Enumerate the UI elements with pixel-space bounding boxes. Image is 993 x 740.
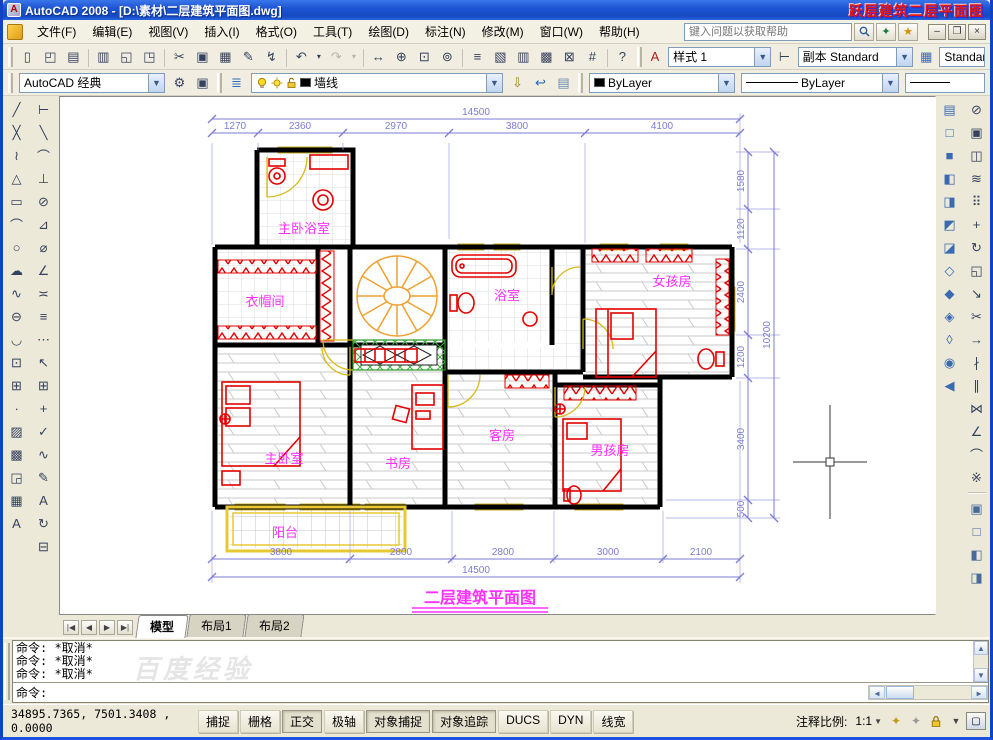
zoom-window-icon[interactable]: ⊡ xyxy=(413,46,436,68)
status-menu-icon[interactable]: ▼ xyxy=(947,712,965,730)
dim-total-bottom: 14500 xyxy=(462,565,490,576)
dim-style-toolbar-icon[interactable]: ⊢ xyxy=(774,46,794,68)
svg-text:3800: 3800 xyxy=(270,547,293,558)
gradient-icon[interactable]: ▩ xyxy=(5,443,28,466)
arc-icon[interactable]: ⌒ xyxy=(5,213,28,236)
coordinate-readout[interactable]: 34895.7365, 7501.3408 , 0.0000 xyxy=(7,705,197,737)
dimension-toolbar: ⊢╲⌒⊥⊘⊿⌀∠≍≡⋯↖⊞+✓∿✎A↻⊟ xyxy=(30,96,57,558)
svg-text:1270: 1270 xyxy=(224,121,247,132)
drawing-file-icon xyxy=(7,24,23,40)
previous-view-icon[interactable]: ◀ xyxy=(938,374,961,397)
autocad-window: A AutoCAD 2008 - [D:\素材\二层建筑平面图.dwg] 跃层建… xyxy=(0,0,993,740)
toggle-otrack[interactable]: 对象追踪 xyxy=(432,710,496,733)
table-icon[interactable]: ▦ xyxy=(5,489,28,512)
dim-inspect-icon[interactable]: ✓ xyxy=(32,420,55,443)
tab-layout1[interactable]: 布局1 xyxy=(186,614,246,637)
break-icon[interactable]: ∥ xyxy=(965,374,988,397)
minimize-button[interactable]: – xyxy=(928,24,946,40)
redo-icon[interactable]: ↷ xyxy=(325,46,348,68)
layer-properties-icon[interactable]: ≣ xyxy=(225,72,248,94)
room-label-boy: 男孩房 xyxy=(590,443,629,458)
scrollbar-thumb[interactable] xyxy=(886,686,914,699)
chevron-down-icon: ▼ xyxy=(874,717,882,726)
bring-to-front-icon[interactable]: ▣ xyxy=(965,497,988,520)
command-prompt: 命令: xyxy=(16,684,47,701)
save-icon[interactable]: ▤ xyxy=(62,46,85,68)
toolbar-divider xyxy=(968,492,986,494)
camera-icon[interactable]: ◉ xyxy=(938,351,961,374)
layout-tabs: 模型布局1布局2 xyxy=(137,614,303,637)
workspace-combo[interactable]: AutoCAD 经典 ▼ xyxy=(19,73,165,93)
svg-text:2970: 2970 xyxy=(385,121,408,132)
block-editor-icon[interactable]: ↯ xyxy=(260,46,283,68)
command-history-line: 命令: *取消* xyxy=(16,668,970,681)
array-icon[interactable]: ⠿ xyxy=(965,190,988,213)
trim-icon[interactable]: ✂ xyxy=(965,305,988,328)
text-style-icon[interactable]: A xyxy=(645,46,665,68)
menu-bar: 文件(F)编辑(E)视图(V)插入(I)格式(O)工具(T)绘图(D)标注(N)… xyxy=(3,20,990,44)
help-icon[interactable]: ? xyxy=(611,46,634,68)
join-icon[interactable]: ⋈ xyxy=(965,397,988,420)
erase-icon[interactable]: ⊘ xyxy=(965,98,988,121)
restore-button[interactable]: ❐ xyxy=(948,24,966,40)
toggle-dyn[interactable]: DYN xyxy=(550,710,591,733)
toolbar-grip[interactable] xyxy=(8,47,13,67)
view-back-icon[interactable]: ◪ xyxy=(938,236,961,259)
main-area: ╱╳≀△▭⌒○☁∿⊖◡⊡⊞∙▨▩◲▦A ⊢╲⌒⊥⊘⊿⌀∠≍≡⋯↖⊞+✓∿✎A↻⊟ xyxy=(3,96,990,637)
right-dock: ▤□■◧◨◩◪◇◆◈◊◉◀ ⊘▣◫≋⠿+↻◱↘✂→∤∥⋈∠⌒※ ▣□◧◨ xyxy=(936,96,990,637)
offset-icon[interactable]: ≋ xyxy=(965,167,988,190)
copy-icon[interactable]: ▣ xyxy=(191,46,214,68)
room-label-study: 书房 xyxy=(385,456,411,471)
view-top-icon[interactable]: □ xyxy=(938,121,961,144)
send-to-back-icon[interactable]: □ xyxy=(965,520,988,543)
chevron-down-icon[interactable]: ▼ xyxy=(486,74,502,92)
chamfer-icon[interactable]: ∠ xyxy=(965,420,988,443)
quick-dim-icon[interactable]: ≍ xyxy=(32,282,55,305)
toggle-snap[interactable]: 捕捉 xyxy=(198,710,238,733)
menu-file[interactable]: 文件(F) xyxy=(29,20,84,43)
open-icon[interactable]: ◰ xyxy=(39,46,62,68)
dim-style-combo[interactable]: 副本 Standard ▼ xyxy=(798,47,913,67)
next-tab-icon[interactable]: ▶ xyxy=(99,620,115,635)
dim-total-top: 14500 xyxy=(462,107,490,118)
view-nw-iso-icon[interactable]: ◊ xyxy=(938,328,961,351)
tool-palettes-icon[interactable]: ▥ xyxy=(512,46,535,68)
toggle-osnap[interactable]: 对象捕捉 xyxy=(366,710,430,733)
layer-freeze-sun-icon[interactable] xyxy=(271,77,283,89)
view-right-icon[interactable]: ◨ xyxy=(938,190,961,213)
table-style-icon[interactable]: ▦ xyxy=(916,46,936,68)
window-title: AutoCAD 2008 - [D:\素材\二层建筑平面图.dwg] xyxy=(25,2,282,19)
view-toolbar: ▤□■◧◨◩◪◇◆◈◊◉◀ xyxy=(936,96,963,397)
hatch-icon[interactable]: ▨ xyxy=(5,420,28,443)
scroll-down-icon[interactable]: ▼ xyxy=(974,668,988,682)
view-left-icon[interactable]: ◧ xyxy=(938,167,961,190)
scroll-left-icon[interactable]: ◀ xyxy=(869,686,885,699)
annotation-autoscale-icon[interactable]: ✦ xyxy=(907,712,925,730)
view-front-icon[interactable]: ◩ xyxy=(938,213,961,236)
pan-icon[interactable]: ↔ xyxy=(367,46,390,68)
room-label-master-bath: 主卧浴室 xyxy=(278,221,330,236)
svg-text:2360: 2360 xyxy=(289,121,312,132)
annotation-scale-label: 注释比例: xyxy=(796,713,847,730)
annotation-visibility-icon[interactable]: ✦ xyxy=(887,712,905,730)
ellipse-icon[interactable]: ⊖ xyxy=(5,305,28,328)
toolbar-grip[interactable] xyxy=(578,73,583,93)
menu-help[interactable]: 帮助(H) xyxy=(591,20,648,43)
layout-tab-bar: |◀ ◀ ▶ ▶| 模型布局1布局2 xyxy=(59,615,936,637)
quickcalc-icon[interactable]: # xyxy=(581,46,604,68)
dim-continue-icon[interactable]: ⋯ xyxy=(32,328,55,351)
new-icon[interactable]: ▯ xyxy=(16,46,39,68)
svg-text:二层建筑平面图: 二层建筑平面图 xyxy=(424,588,536,607)
drawing-canvas[interactable]: 14500 1270 2360 2970 3800 4100 3800 2800… xyxy=(59,96,936,615)
app-logo-icon: A xyxy=(7,3,21,17)
fillet-icon[interactable]: ⌒ xyxy=(965,443,988,466)
view-se-iso-icon[interactable]: ◆ xyxy=(938,282,961,305)
favorites-icon[interactable]: ★ xyxy=(898,23,918,41)
command-window: 命令: *取消*命令: *取消*命令: *取消* 百度经验 ▲ ▼ 命令: ◀ … xyxy=(3,637,990,704)
svg-text:2100: 2100 xyxy=(690,547,713,558)
clean-screen-button[interactable]: ▢ xyxy=(966,712,986,730)
room-label-balcony: 阳台 xyxy=(272,525,298,540)
properties-icon[interactable]: ≡ xyxy=(466,46,489,68)
close-button[interactable]: × xyxy=(968,24,986,40)
dim-jogline-icon[interactable]: ∿ xyxy=(32,443,55,466)
first-tab-icon[interactable]: |◀ xyxy=(63,620,79,635)
dim-style-icon[interactable]: ⊟ xyxy=(32,535,55,558)
toggle-ortho[interactable]: 正交 xyxy=(282,710,322,733)
polyline-icon[interactable]: ≀ xyxy=(5,144,28,167)
dim-radius-icon[interactable]: ⊘ xyxy=(32,190,55,213)
dim-aligned-icon[interactable]: ╲ xyxy=(32,121,55,144)
zoom-previous-icon[interactable]: ⊚ xyxy=(436,46,459,68)
status-bar: 34895.7365, 7501.3408 , 0.0000 捕捉栅格正交极轴对… xyxy=(3,704,990,737)
send-under-icon[interactable]: ◨ xyxy=(965,566,988,589)
floor-plan: 14500 1270 2360 2970 3800 4100 3800 2800… xyxy=(60,97,936,615)
plot-icon[interactable]: ▥ xyxy=(92,46,115,68)
explode-icon[interactable]: ※ xyxy=(965,466,988,489)
designcenter-icon[interactable]: ▧ xyxy=(489,46,512,68)
command-horizontal-scrollbar[interactable]: ◀ ▶ xyxy=(868,685,988,700)
tab-layout2[interactable]: 布局2 xyxy=(244,614,304,637)
view-ne-iso-icon[interactable]: ◈ xyxy=(938,305,961,328)
workspace-settings-icon[interactable]: ⚙ xyxy=(168,72,191,94)
chevron-down-icon[interactable]: ▼ xyxy=(896,48,912,66)
linetype-sample xyxy=(746,82,798,83)
layer-combo[interactable]: 墙线 ▼ xyxy=(251,73,503,93)
room-label-master: 主卧室 xyxy=(264,451,303,466)
modify-toolbar: ⊘▣◫≋⠿+↻◱↘✂→∤∥⋈∠⌒※ ▣□◧◨ xyxy=(963,96,990,589)
tab-navigation: |◀ ◀ ▶ ▶| xyxy=(61,620,133,635)
undo-menu-icon[interactable]: ▾ xyxy=(313,46,325,68)
point-icon[interactable]: ∙ xyxy=(5,397,28,420)
sheet-set-manager-icon[interactable]: ▩ xyxy=(535,46,558,68)
color-swatch xyxy=(594,78,605,87)
svg-text:3000: 3000 xyxy=(597,547,620,558)
linetype-combo[interactable]: ByLayer ▼ xyxy=(741,73,899,93)
scroll-right-icon[interactable]: ▶ xyxy=(971,686,987,699)
tab-model[interactable]: 模型 xyxy=(135,615,188,638)
command-history-line: 命令: *取消* xyxy=(16,642,970,655)
markup-set-manager-icon[interactable]: ⊠ xyxy=(558,46,581,68)
menu-draw[interactable]: 绘图(D) xyxy=(360,20,417,43)
dim-update-icon[interactable]: ↻ xyxy=(32,512,55,535)
named-views-icon[interactable]: ▤ xyxy=(938,98,961,121)
polygon-icon[interactable]: △ xyxy=(5,167,28,190)
layer-unlock-icon[interactable] xyxy=(286,77,297,89)
svg-text:2400: 2400 xyxy=(736,280,747,303)
rectangle-icon[interactable]: ▭ xyxy=(5,190,28,213)
lineweight-sample xyxy=(910,82,950,83)
quick-leader-icon[interactable]: ↖ xyxy=(32,351,55,374)
dim-baseline-icon[interactable]: ≡ xyxy=(32,305,55,328)
toggle-grid[interactable]: 栅格 xyxy=(240,710,280,733)
layer-previous-icon[interactable]: ↩ xyxy=(529,72,552,94)
toolbar-grip[interactable] xyxy=(637,47,642,67)
svg-text:2800: 2800 xyxy=(492,547,515,558)
lineweight-combo[interactable] xyxy=(905,73,985,93)
menu-window[interactable]: 窗口(W) xyxy=(532,20,591,43)
command-vertical-scrollbar[interactable]: ▲ ▼ xyxy=(973,641,988,682)
plot-preview-icon[interactable]: ◱ xyxy=(115,46,138,68)
svg-text:1120: 1120 xyxy=(736,218,747,240)
line-icon[interactable]: ╱ xyxy=(5,98,28,121)
annotation-scale-control[interactable]: 1:1 ▼ xyxy=(851,713,886,729)
menu-dimension[interactable]: 标注(N) xyxy=(417,20,474,43)
menu-format[interactable]: 格式(O) xyxy=(248,20,305,43)
chevron-down-icon[interactable]: ▼ xyxy=(148,74,164,92)
make-object-layer-current-icon[interactable]: ⇩ xyxy=(506,72,529,94)
left-dock: ╱╳≀△▭⌒○☁∿⊖◡⊡⊞∙▨▩◲▦A ⊢╲⌒⊥⊘⊿⌀∠≍≡⋯↖⊞+✓∿✎A↻⊟ xyxy=(3,96,59,637)
dim-linear-icon[interactable]: ⊢ xyxy=(32,98,55,121)
svg-text:500: 500 xyxy=(736,500,747,517)
construction-line-icon[interactable]: ╳ xyxy=(5,121,28,144)
draw-order-toolbar: ▣□◧◨ xyxy=(965,497,988,589)
standard-buttons: ▯◰▤▥◱◳✂▣▦✎↯↶▾↷▾↔⊕⊡⊚≡▧▥▩⊠#? xyxy=(16,46,634,68)
toggle-ducs[interactable]: DUCS xyxy=(498,710,548,733)
room-label-guest: 客房 xyxy=(489,428,515,443)
center-mark-icon[interactable]: + xyxy=(32,397,55,420)
menu-modify[interactable]: 修改(M) xyxy=(474,20,532,43)
table-style-combo[interactable]: Standard xyxy=(939,47,985,67)
toolbar-lock-icon[interactable] xyxy=(927,712,945,730)
layer-color-swatch xyxy=(300,78,311,87)
help-search-input[interactable] xyxy=(684,23,852,41)
dim-total-right: 10200 xyxy=(762,321,773,349)
menu-tools[interactable]: 工具(T) xyxy=(305,20,360,43)
communication-center-icon[interactable]: ✦ xyxy=(876,23,896,41)
scale-icon[interactable]: ◱ xyxy=(965,259,988,282)
menu-edit[interactable]: 编辑(E) xyxy=(84,20,140,43)
plan-title: 二层建筑平面图 xyxy=(412,588,548,612)
workspace-save-icon[interactable]: ▣ xyxy=(191,72,214,94)
mtext-icon[interactable]: A xyxy=(5,512,28,535)
last-tab-icon[interactable]: ▶| xyxy=(117,620,133,635)
ellipse-arc-icon[interactable]: ◡ xyxy=(5,328,28,351)
spiral-staircase xyxy=(357,256,437,336)
layer-states-icon[interactable]: ▤ xyxy=(552,72,575,94)
mdi-window-buttons: – ❐ × xyxy=(926,24,986,40)
status-toggles: 捕捉栅格正交极轴对象捕捉对象追踪DUCSDYN线宽 xyxy=(197,710,634,733)
toolbar-grip[interactable] xyxy=(8,73,13,93)
layers-toolbar: AutoCAD 经典 ▼ ⚙ ▣ ≣ 墙线 ▼ ⇩ ↩ ▤ ByLayer ▼ … xyxy=(3,70,990,96)
stretch-icon[interactable]: ↘ xyxy=(965,282,988,305)
zoom-realtime-icon[interactable]: ⊕ xyxy=(390,46,413,68)
chevron-down-icon[interactable]: ▼ xyxy=(754,48,770,66)
menu-insert[interactable]: 插入(I) xyxy=(196,20,247,43)
mirror-icon[interactable]: ◫ xyxy=(965,144,988,167)
dim-ordinate-icon[interactable]: ⊥ xyxy=(32,167,55,190)
view-sw-iso-icon[interactable]: ◇ xyxy=(938,259,961,282)
watermark-text: 跃层建筑二层平面图 xyxy=(849,1,984,21)
svg-text:2800: 2800 xyxy=(390,547,413,558)
entry-mat xyxy=(353,340,445,370)
chevron-down-icon[interactable]: ▼ xyxy=(718,74,734,92)
scroll-up-icon[interactable]: ▲ xyxy=(974,641,988,655)
dim-arc-length-icon[interactable]: ⌒ xyxy=(32,144,55,167)
svg-text:1580: 1580 xyxy=(736,169,747,192)
room-label-girl: 女孩房 xyxy=(652,274,691,289)
room-label-closet: 衣帽间 xyxy=(245,294,284,309)
command-window-grip[interactable] xyxy=(4,643,10,700)
svg-text:3400: 3400 xyxy=(736,427,747,450)
extend-icon[interactable]: → xyxy=(965,328,988,351)
view-bottom-icon[interactable]: ■ xyxy=(938,144,961,167)
undo-icon[interactable]: ↶ xyxy=(290,46,313,68)
layer-on-bulb-icon[interactable] xyxy=(256,77,268,89)
room-label-bath: 浴室 xyxy=(494,288,520,303)
svg-text:1200: 1200 xyxy=(736,345,747,368)
title-bar: A AutoCAD 2008 - [D:\素材\二层建筑平面图.dwg] 跃层建… xyxy=(3,0,990,20)
break-at-point-icon[interactable]: ∤ xyxy=(965,351,988,374)
dim-angular-icon[interactable]: ∠ xyxy=(32,259,55,282)
menu-view[interactable]: 视图(V) xyxy=(140,20,196,43)
dim-jogged-icon[interactable]: ⊿ xyxy=(32,213,55,236)
toggle-lwt[interactable]: 线宽 xyxy=(593,710,633,733)
command-history[interactable]: 命令: *取消*命令: *取消*命令: *取消* 百度经验 ▲ ▼ xyxy=(13,641,988,683)
svg-text:3800: 3800 xyxy=(506,121,529,132)
region-icon[interactable]: ◲ xyxy=(5,466,28,489)
prev-tab-icon[interactable]: ◀ xyxy=(81,620,97,635)
rotate-icon[interactable]: ↻ xyxy=(965,236,988,259)
search-icon[interactable] xyxy=(854,23,874,41)
revcloud-icon[interactable]: ☁ xyxy=(5,259,28,282)
move-icon[interactable]: + xyxy=(965,213,988,236)
redo-menu-icon[interactable]: ▾ xyxy=(348,46,360,68)
toggle-polar[interactable]: 极轴 xyxy=(324,710,364,733)
spline-icon[interactable]: ∿ xyxy=(5,282,28,305)
publish-icon[interactable]: ◳ xyxy=(138,46,161,68)
insert-block-icon[interactable]: ⊡ xyxy=(5,351,28,374)
text-style-combo[interactable]: 样式 1 ▼ xyxy=(668,47,771,67)
dim-edit-icon[interactable]: ✎ xyxy=(32,466,55,489)
crosshair-cursor xyxy=(793,405,867,519)
draw-toolbar: ╱╳≀△▭⌒○☁∿⊖◡⊡⊞∙▨▩◲▦A xyxy=(3,96,30,535)
circle-icon[interactable]: ○ xyxy=(5,236,28,259)
floor-hatching xyxy=(218,153,729,548)
paste-icon[interactable]: ▦ xyxy=(214,46,237,68)
match-properties-icon[interactable]: ✎ xyxy=(237,46,260,68)
svg-text:4100: 4100 xyxy=(651,121,674,132)
toolbar-grip[interactable] xyxy=(217,73,222,93)
dim-diameter-icon[interactable]: ⌀ xyxy=(32,236,55,259)
make-block-icon[interactable]: ⊞ xyxy=(5,374,28,397)
chevron-down-icon[interactable]: ▼ xyxy=(882,74,898,92)
dim-text-edit-icon[interactable]: A xyxy=(32,489,55,512)
copy-object-icon[interactable]: ▣ xyxy=(965,121,988,144)
tolerance-icon[interactable]: ⊞ xyxy=(32,374,55,397)
standard-toolbar: ▯◰▤▥◱◳✂▣▦✎↯↶▾↷▾↔⊕⊡⊚≡▧▥▩⊠#? A 样式 1 ▼ ⊢ 副本… xyxy=(3,44,990,70)
menu-items: 文件(F)编辑(E)视图(V)插入(I)格式(O)工具(T)绘图(D)标注(N)… xyxy=(29,20,648,43)
color-combo[interactable]: ByLayer ▼ xyxy=(589,73,735,93)
current-layer-name: 墙线 xyxy=(314,74,338,91)
command-history-line: 命令: *取消* xyxy=(16,655,970,668)
cut-icon[interactable]: ✂ xyxy=(168,46,191,68)
command-prompt-row[interactable]: 命令: ◀ ▶ xyxy=(13,683,988,702)
bring-above-icon[interactable]: ◧ xyxy=(965,543,988,566)
